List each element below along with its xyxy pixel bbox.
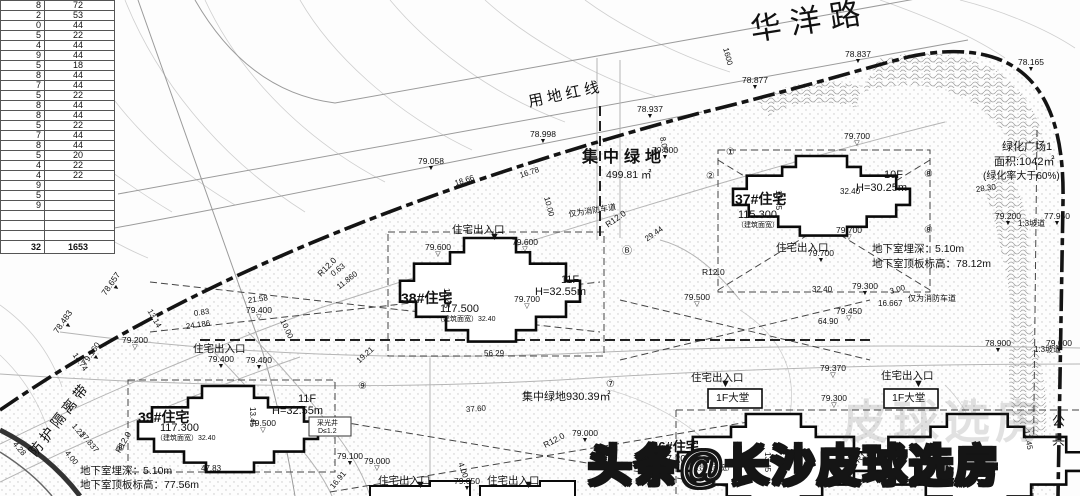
grid-axis-bubble: Ⓑ	[622, 247, 632, 257]
grid-axis-bubble: ⑦	[606, 380, 615, 390]
grid-axis-bubble: ②	[706, 172, 715, 182]
site-plan-screenshot: 8 72 2 53 0 44 5 22 4 44 9 44 5 18 8	[0, 0, 1080, 496]
grid-axis-bubble: ⑧	[924, 170, 933, 180]
grid-axis-bubble: ⑧	[924, 226, 933, 236]
grid-axis-bubble: ①	[726, 148, 735, 158]
grid-axis-bubble: ⑧	[116, 444, 125, 454]
watermark: 头条@长沙皮球选房	[588, 430, 1001, 494]
grid-axis-bubble: ⑨	[358, 382, 367, 392]
